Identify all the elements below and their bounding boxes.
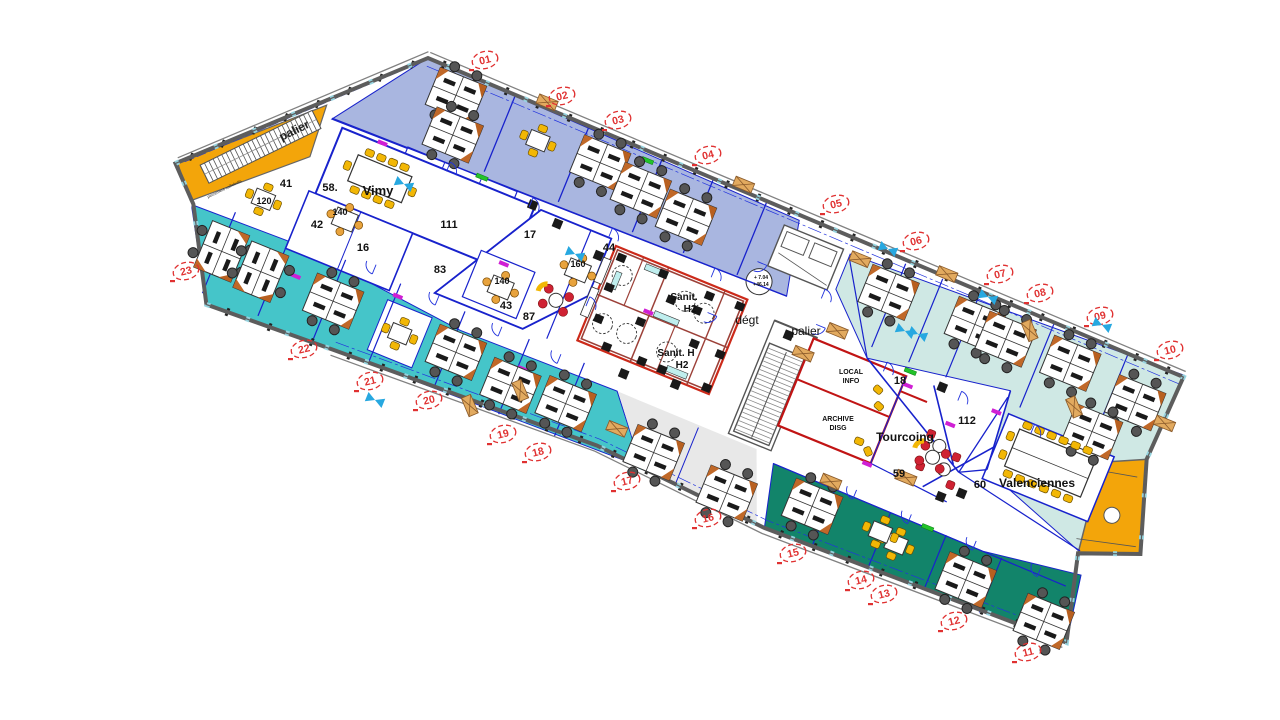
svg-text:111: 111: [440, 219, 457, 231]
svg-text:120: 120: [256, 196, 271, 206]
svg-text:Vimy: Vimy: [363, 183, 395, 198]
svg-text:H2: H2: [676, 360, 689, 371]
svg-text:112: 112: [958, 415, 976, 427]
svg-text:160: 160: [570, 259, 585, 269]
svg-text:H2: H2: [684, 304, 697, 315]
svg-text:60: 60: [974, 479, 986, 491]
svg-text:Sanit. H: Sanit. H: [657, 348, 694, 359]
svg-text:LOCAL: LOCAL: [839, 369, 864, 376]
svg-text:Tourcoing: Tourcoing: [876, 430, 934, 444]
svg-text:44: 44: [603, 242, 616, 254]
svg-text:140: 140: [332, 207, 347, 217]
svg-text:DISG: DISG: [829, 425, 847, 432]
svg-text:87: 87: [523, 311, 535, 323]
svg-text:43: 43: [500, 300, 512, 312]
svg-text:+ 7.04: + 7.04: [754, 275, 768, 281]
svg-text:83: 83: [434, 264, 446, 276]
svg-text:17: 17: [524, 229, 536, 241]
svg-text:Valenciennes: Valenciennes: [999, 476, 1075, 490]
svg-text:palier: palier: [791, 324, 820, 338]
svg-text:41: 41: [280, 178, 292, 190]
svg-text:ARCHIVE: ARCHIVE: [822, 416, 854, 423]
svg-text:dégt: dégt: [735, 313, 759, 327]
svg-text:INFO: INFO: [843, 378, 860, 385]
svg-text:Sanit.: Sanit.: [670, 292, 697, 303]
svg-text:140: 140: [494, 276, 509, 286]
svg-text:59: 59: [893, 468, 905, 480]
svg-text:42: 42: [311, 219, 323, 231]
svg-text:+46.14: +46.14: [753, 282, 769, 288]
svg-text:18: 18: [894, 375, 906, 387]
svg-text:16: 16: [357, 242, 369, 254]
svg-text:58.: 58.: [322, 182, 337, 194]
